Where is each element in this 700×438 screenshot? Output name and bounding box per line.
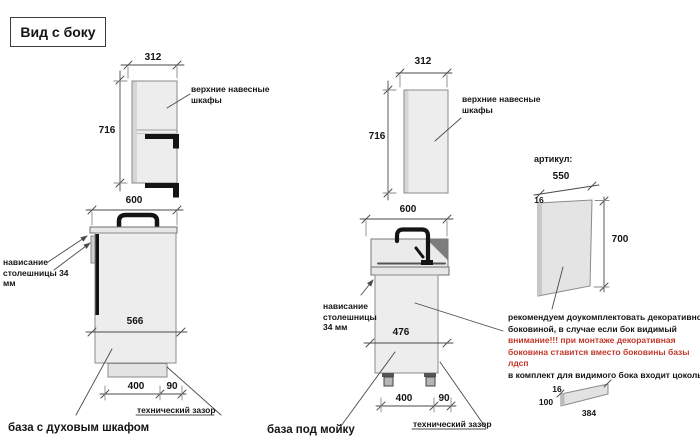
countertop-sink: [371, 267, 449, 275]
dim-400-sink: 400: [389, 393, 419, 404]
base-sink-caption: база под мойку: [267, 424, 355, 436]
side-panel-edge: [538, 203, 542, 296]
dim-716-left: 716: [96, 125, 118, 136]
caption-leader-oven: [76, 349, 112, 415]
wall-cabinet-left-body: [132, 81, 177, 183]
oven-handle: [119, 215, 157, 228]
dim-312-mid: 312: [408, 56, 438, 67]
wall-cabinets-label-left: верхние навесные шкафы: [191, 84, 273, 105]
wall-cabinets-label-mid: верхние навесные шкафы: [462, 94, 544, 115]
dim-16-plinth: 16: [550, 384, 564, 394]
note-kit: в комплект для видимого бока входит цоко…: [508, 370, 700, 382]
dim-100-plinth: 100: [536, 397, 556, 407]
note-recommendation: рекомендуем доукомплектовать декоративно…: [508, 312, 700, 335]
wall-cabinet-left-drawing: [114, 61, 190, 198]
plinth-strip-edge: [561, 393, 565, 406]
dim-476: 476: [386, 327, 416, 338]
base-oven-body: [95, 233, 176, 363]
handle-profile-bottom: [145, 183, 179, 198]
countertop-oven: [90, 227, 177, 233]
overhang-label-oven: нависание столешницы 34 мм: [3, 257, 83, 289]
tech-gap-label-sink: технический зазор: [413, 419, 493, 430]
dim-700: 700: [608, 234, 632, 245]
foot-right-flange: [424, 373, 436, 377]
dim-90-oven: 90: [160, 381, 184, 392]
overhang-label-sink: нависание столешницы 34 мм: [323, 301, 375, 333]
dim-550: 550: [548, 171, 574, 182]
dim-716-mid: 716: [366, 131, 388, 142]
plinth-strip-drawing: [557, 380, 611, 406]
base-oven-caption: база с духовым шкафом: [8, 422, 149, 434]
dim-312-left: 312: [138, 52, 168, 63]
overhang-arrow-sink: [361, 280, 373, 295]
plinth-oven: [108, 364, 167, 378]
wall-cabinet-mid-drawing: [383, 69, 461, 200]
note-warning: внимание!!! при монтаже декоративная бок…: [508, 335, 700, 370]
base-sink-body: [375, 275, 438, 373]
wall-cabinet-left-side-edge: [133, 82, 138, 183]
dim-line-700: [594, 197, 609, 292]
dim-600-sink: 600: [393, 204, 423, 215]
overhang-tab: [91, 236, 95, 263]
caption-leader-sink: [341, 352, 395, 426]
dim-384-plinth: 384: [578, 408, 600, 418]
foot-right: [426, 377, 435, 386]
dim-90-sink: 90: [432, 393, 456, 404]
dim-16-panel: 16: [532, 195, 546, 205]
faucet-base: [421, 260, 433, 265]
dim-line-312-mid: [396, 69, 452, 87]
wall-cabinet-mid-body: [404, 90, 448, 193]
foot-left: [384, 377, 393, 386]
dim-line-312-left: [121, 61, 184, 78]
dim-566: 566: [120, 316, 150, 327]
foot-left-flange: [382, 373, 394, 377]
dim-line-600-sink: [360, 215, 453, 236]
tech-gap-label-oven: технический зазор: [137, 405, 217, 416]
side-view-drawing-sheet: Вид с боку 312 716 верхние навесные шкаф…: [0, 0, 700, 438]
dim-400-oven: 400: [121, 381, 151, 392]
view-title: Вид с боку: [10, 17, 106, 47]
plinth-strip-face: [561, 384, 608, 406]
wall-cabinet-mid-side-edge: [405, 91, 409, 193]
oven-door-edge: [96, 234, 100, 315]
dim-600-oven: 600: [119, 195, 149, 206]
decorative-panel-note: рекомендуем доукомплектовать декоративно…: [508, 312, 700, 381]
article-label: артикул:: [534, 154, 572, 165]
side-panel-face: [538, 200, 592, 296]
